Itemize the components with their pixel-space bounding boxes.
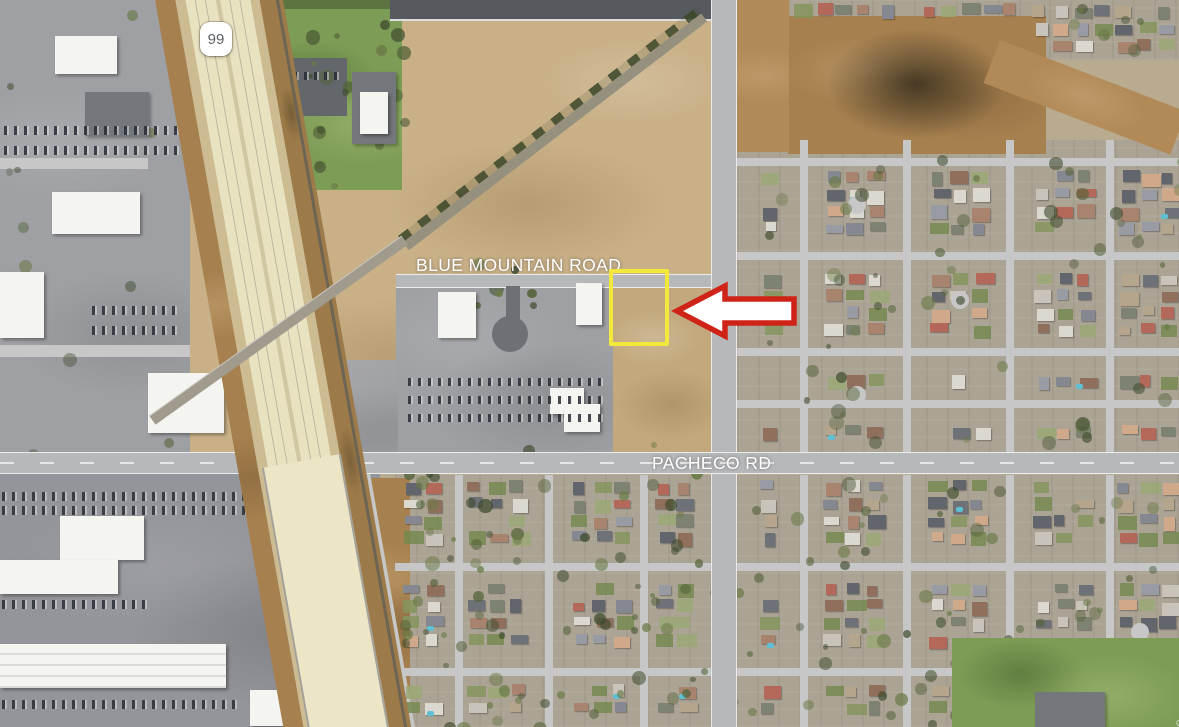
lawn: [592, 686, 607, 696]
tree: [631, 627, 638, 634]
house: [594, 518, 607, 530]
house: [848, 516, 858, 529]
tree: [823, 644, 828, 649]
tree: [861, 628, 866, 633]
blue-mountain-road-label: BLUE MOUNTAIN ROAD: [416, 255, 621, 276]
house: [1117, 483, 1128, 493]
house: [1163, 483, 1179, 495]
house: [1162, 173, 1172, 184]
tree: [413, 596, 424, 607]
lawn: [866, 533, 881, 547]
house: [1081, 310, 1096, 321]
lawn: [595, 500, 611, 514]
house: [1056, 377, 1071, 385]
tree: [935, 248, 944, 257]
house: [573, 603, 584, 611]
house: [845, 425, 860, 434]
lawn: [404, 531, 423, 544]
tree: [861, 547, 870, 556]
tree: [456, 641, 467, 652]
house: [1140, 514, 1158, 523]
house: [1038, 324, 1048, 333]
location-arrow-icon: [672, 282, 800, 340]
house: [847, 306, 857, 317]
tree: [754, 573, 765, 584]
lawn: [847, 600, 867, 611]
tree: [477, 566, 484, 573]
house: [827, 190, 844, 201]
tree: [466, 498, 476, 508]
house: [490, 600, 504, 612]
house: [845, 533, 860, 546]
house: [574, 617, 590, 625]
house: [573, 482, 584, 494]
tree: [527, 289, 536, 298]
tree: [651, 597, 660, 606]
lawn: [824, 618, 840, 629]
tree: [400, 118, 410, 128]
house: [1079, 585, 1093, 595]
house: [426, 534, 443, 546]
house: [835, 5, 850, 14]
house: [1057, 429, 1069, 439]
tree: [840, 561, 850, 571]
house: [616, 517, 632, 527]
tree: [859, 522, 865, 528]
tree: [615, 552, 626, 563]
house: [972, 208, 989, 222]
house: [1142, 174, 1161, 187]
house: [868, 323, 884, 334]
tree: [632, 614, 638, 620]
lawn: [869, 374, 884, 386]
lawn: [1035, 497, 1052, 511]
house: [970, 500, 981, 509]
tree: [416, 476, 430, 490]
tree: [765, 231, 774, 240]
lawn: [1058, 309, 1073, 321]
house: [818, 3, 833, 14]
residential-street-6: [1006, 140, 1014, 452]
house: [428, 602, 441, 612]
house: [1119, 600, 1136, 610]
house: [1159, 25, 1174, 34]
house: [1143, 275, 1158, 287]
house: [511, 635, 527, 645]
house: [658, 484, 668, 495]
tree: [443, 663, 449, 669]
lawn: [869, 618, 885, 631]
lawn: [571, 515, 587, 527]
tree: [680, 584, 690, 594]
house: [1122, 190, 1135, 203]
tree: [441, 632, 447, 638]
house: [1159, 616, 1176, 629]
tree: [767, 340, 773, 346]
lawn: [658, 514, 677, 525]
house: [513, 499, 529, 512]
lawn: [870, 291, 890, 303]
house: [1080, 378, 1098, 389]
house: [1060, 273, 1073, 284]
tree: [936, 617, 946, 627]
tree: [647, 479, 658, 490]
lawn: [1080, 325, 1096, 337]
tree: [963, 436, 970, 443]
tree: [380, 20, 390, 30]
house: [1143, 306, 1154, 315]
tree: [915, 683, 926, 694]
house: [405, 516, 421, 524]
house: [826, 483, 841, 496]
house: [616, 600, 632, 614]
tree: [846, 387, 860, 401]
house: [1078, 292, 1091, 300]
tree: [947, 266, 955, 274]
tree: [970, 523, 984, 537]
house: [928, 497, 947, 508]
tree: [530, 302, 538, 310]
tree: [937, 155, 948, 166]
house: [1003, 3, 1015, 14]
tree: [1164, 324, 1170, 330]
tree: [921, 296, 935, 310]
tree: [18, 222, 29, 233]
tree: [819, 657, 832, 670]
tree: [580, 533, 589, 542]
tree: [486, 619, 499, 632]
canal-road-top: [390, 0, 718, 21]
house: [1034, 290, 1051, 303]
house: [1077, 204, 1095, 218]
house: [929, 637, 946, 649]
tree: [855, 188, 869, 202]
tree: [776, 193, 788, 205]
lawn: [826, 686, 844, 696]
house: [1053, 41, 1071, 51]
house: [973, 224, 984, 235]
house: [952, 375, 965, 389]
house: [930, 323, 948, 331]
house: [1120, 292, 1139, 306]
tree: [457, 722, 471, 727]
house: [1035, 532, 1052, 545]
house: [614, 500, 630, 508]
tree: [752, 506, 761, 515]
tree: [838, 546, 850, 558]
tree: [518, 693, 525, 700]
tree: [426, 528, 434, 536]
house: [826, 584, 836, 595]
house: [932, 599, 944, 610]
tree: [425, 556, 440, 571]
house: [934, 189, 951, 198]
tree: [869, 436, 882, 449]
tree: [695, 559, 704, 568]
tree: [563, 626, 572, 635]
tree: [1147, 502, 1159, 514]
tree: [311, 61, 317, 67]
tree: [804, 397, 810, 403]
tree: [925, 670, 937, 682]
lawn: [930, 223, 949, 234]
tree: [1160, 262, 1165, 267]
lawn: [489, 482, 506, 495]
house: [1123, 170, 1140, 182]
tree: [6, 168, 13, 175]
warehouse-row-2: [0, 644, 226, 688]
house: [1120, 533, 1138, 543]
residential-street-14: [903, 475, 911, 727]
lawn: [941, 6, 955, 18]
pool: [767, 643, 774, 648]
tree: [342, 89, 349, 96]
tree: [489, 673, 503, 687]
building-topleft-1: [55, 36, 117, 74]
house: [403, 585, 419, 593]
house: [867, 191, 883, 205]
residential-street-5: [903, 140, 911, 452]
residential-street-7: [1106, 140, 1114, 452]
lawn: [1141, 482, 1161, 493]
pool: [427, 711, 434, 716]
house: [763, 428, 777, 441]
residential-street-12: [640, 475, 648, 727]
house: [976, 273, 995, 284]
lawn: [1163, 532, 1179, 544]
house: [426, 634, 437, 646]
house: [1122, 274, 1139, 285]
house: [924, 7, 934, 17]
house: [1141, 323, 1155, 333]
tree: [667, 692, 679, 704]
dealer-lot-row-2: [2, 506, 282, 515]
tree: [997, 361, 1008, 372]
house: [953, 600, 965, 610]
tree: [928, 720, 936, 727]
house: [766, 222, 777, 230]
tree: [748, 708, 756, 716]
lawn: [847, 704, 866, 715]
tree: [402, 639, 410, 647]
tree: [589, 709, 599, 719]
tree: [635, 584, 640, 589]
pacheco-rd-label: PACHECO RD: [652, 453, 771, 474]
building-topleft-3: [52, 192, 140, 234]
house: [932, 172, 943, 185]
warehouse-row-1: [0, 560, 118, 594]
lawn: [1037, 274, 1052, 284]
dealer-lot-row-3: [2, 600, 152, 609]
lawn: [928, 481, 947, 492]
satellite-map: 99 BLUE MOUNTAIN ROAD PACHECO RD GEMLS G…: [0, 0, 1179, 727]
tree: [14, 167, 20, 173]
lawn: [615, 532, 630, 543]
house: [763, 600, 778, 613]
house: [1119, 327, 1130, 335]
house: [597, 531, 612, 540]
lawn: [656, 634, 673, 647]
building-left-edge: [0, 272, 44, 338]
house: [761, 703, 773, 714]
house: [1161, 307, 1174, 320]
house: [763, 208, 777, 221]
house: [760, 480, 773, 488]
tree: [690, 677, 696, 683]
pool: [956, 507, 963, 512]
house: [1057, 289, 1068, 300]
house: [972, 602, 988, 616]
tree: [632, 671, 646, 685]
house: [869, 482, 882, 491]
house: [510, 599, 521, 612]
tree: [888, 305, 895, 312]
tree: [1075, 610, 1087, 622]
house: [469, 703, 486, 713]
lawn: [1161, 377, 1178, 390]
tree: [803, 700, 814, 711]
tree: [661, 623, 673, 635]
tree: [1016, 625, 1024, 633]
tree: [1098, 29, 1110, 41]
house: [1142, 222, 1160, 230]
house: [1094, 5, 1109, 15]
tree: [1036, 619, 1044, 627]
topleft-parking-row-3: [92, 306, 180, 315]
house: [765, 515, 778, 527]
tree: [473, 591, 483, 601]
house: [1055, 188, 1069, 197]
tree: [994, 486, 1006, 498]
highway-99-shield-number: 99: [208, 31, 225, 48]
house: [823, 500, 837, 509]
tree: [947, 487, 960, 500]
house: [972, 308, 986, 318]
house: [1059, 326, 1073, 337]
tree: [397, 46, 411, 60]
house: [1037, 309, 1054, 321]
tree: [1042, 436, 1055, 449]
tree: [447, 555, 454, 562]
tree: [619, 491, 629, 501]
house: [1039, 377, 1049, 390]
tree: [416, 500, 425, 509]
house: [973, 188, 990, 202]
house: [678, 483, 688, 495]
house: [1033, 516, 1051, 529]
lawn: [677, 599, 692, 612]
house: [826, 289, 842, 301]
house: [1122, 425, 1139, 434]
house: [951, 617, 965, 625]
tree: [895, 693, 908, 706]
house: [867, 599, 882, 607]
lawn: [1118, 516, 1137, 530]
tree: [806, 365, 819, 378]
dealer-lot-row-1: [2, 492, 282, 501]
house: [962, 3, 980, 14]
house: [1161, 276, 1177, 285]
house: [826, 225, 842, 233]
tree: [829, 176, 841, 188]
topleft-parking-row-1: [4, 126, 179, 135]
dealer-lot-row-4: [2, 700, 242, 709]
lawn: [951, 516, 968, 527]
house: [1078, 170, 1090, 182]
house: [1120, 617, 1132, 627]
tree: [1089, 607, 1101, 619]
tree: [791, 512, 804, 525]
house: [1163, 498, 1174, 510]
house: [1115, 25, 1132, 36]
pacheco-center-line: [0, 462, 1179, 464]
house: [1161, 427, 1175, 436]
house: [593, 635, 605, 643]
tree: [499, 632, 506, 639]
tree: [1076, 188, 1089, 201]
house: [1162, 603, 1179, 616]
house: [1162, 585, 1179, 597]
house: [680, 703, 698, 712]
tree: [1110, 207, 1123, 220]
house: [1077, 274, 1088, 286]
lawn: [1078, 515, 1093, 527]
house: [509, 480, 522, 492]
tree: [665, 499, 676, 510]
tree: [617, 690, 625, 698]
tree: [651, 442, 657, 448]
tree: [806, 557, 814, 565]
tree: [63, 353, 77, 367]
house: [658, 703, 673, 712]
lawn: [972, 289, 988, 303]
house: [1141, 428, 1156, 440]
house: [849, 634, 860, 647]
tree: [1121, 16, 1130, 25]
house: [1032, 5, 1044, 16]
tree: [540, 699, 550, 709]
house: [976, 428, 991, 440]
tree: [850, 326, 861, 337]
house: [488, 584, 504, 593]
lawn: [951, 584, 970, 596]
tree: [495, 290, 503, 298]
tree: [478, 499, 493, 514]
lawn: [1139, 599, 1155, 611]
house: [764, 686, 780, 699]
tree: [499, 685, 511, 697]
tree: [1111, 497, 1123, 509]
house: [882, 5, 894, 19]
tree: [595, 558, 607, 570]
house: [1053, 24, 1068, 36]
tree: [957, 214, 970, 227]
tree: [487, 702, 494, 709]
tree: [842, 477, 856, 491]
tree: [334, 33, 340, 39]
tree: [1126, 575, 1133, 582]
parcel-highlight: [609, 269, 669, 346]
house: [1158, 7, 1169, 19]
house: [849, 498, 862, 511]
house: [1162, 292, 1178, 302]
lawn: [1034, 482, 1049, 492]
house: [932, 310, 950, 323]
tree: [880, 494, 889, 503]
tree: [747, 651, 753, 657]
tree: [861, 506, 871, 516]
house: [1142, 190, 1157, 200]
